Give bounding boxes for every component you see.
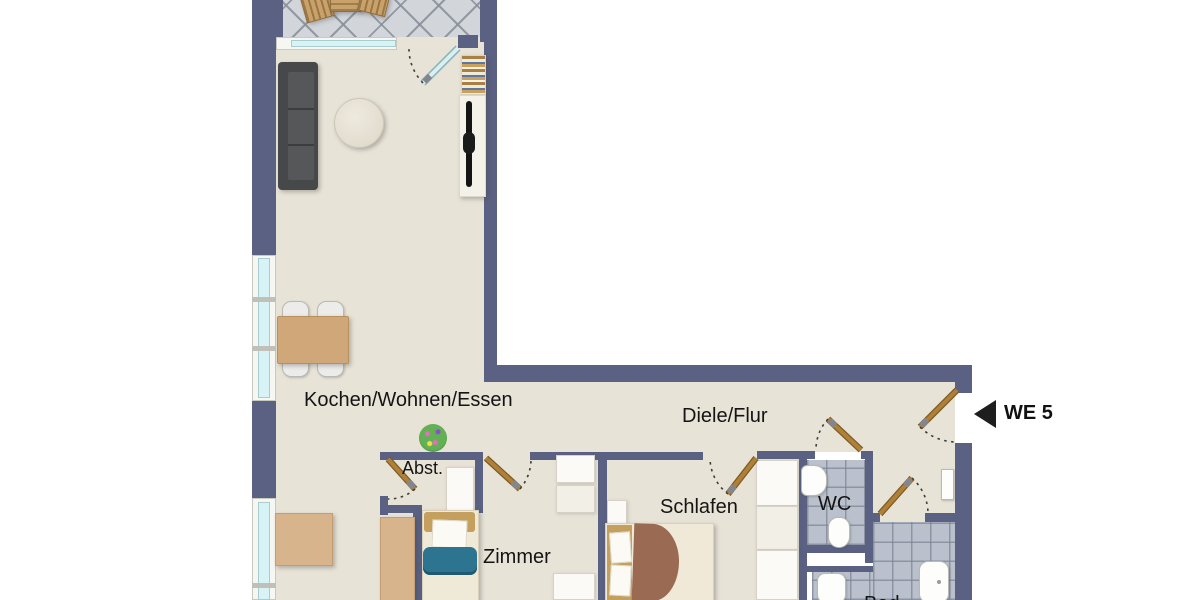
bath-top-wall-left (868, 513, 880, 522)
floor-plan: Kochen/Wohnen/Essen Diele/Flur Abst. Sch… (0, 0, 1200, 600)
corridor-closet (941, 469, 954, 500)
label-bath: Bad (864, 593, 900, 600)
window-mullion (252, 346, 276, 351)
window-mullion (252, 583, 276, 588)
duct-bottom-wall (807, 566, 873, 572)
shower-tray (817, 573, 846, 600)
single-bed (422, 510, 479, 600)
room-closet-bottom (553, 573, 595, 600)
kitchen-counter-left (275, 513, 333, 566)
room-closet-top (556, 455, 595, 483)
double-bed (605, 523, 714, 600)
tv-stand (463, 132, 475, 154)
bathtub-drain (937, 580, 941, 584)
left-wall-pier (252, 400, 276, 499)
dining-table (277, 316, 349, 364)
bathtub (919, 561, 949, 600)
balcony-door-jamb (458, 35, 478, 48)
storage-bottom-wall (380, 505, 417, 513)
wardrobe-unit (756, 506, 798, 550)
window-glass-a (258, 258, 270, 398)
label-storage: Abst. (402, 458, 443, 479)
hall-top-wall (484, 365, 972, 382)
single-bed-blanket (423, 547, 477, 575)
label-hall: Diele/Flur (682, 405, 768, 428)
storage-right-wall (475, 452, 483, 513)
label-bedroom: Schlafen (660, 496, 738, 519)
bookshelf (461, 55, 486, 95)
label-wc: WC (818, 493, 851, 516)
unit-arrow-icon (974, 400, 996, 428)
double-bed-blanket (632, 523, 681, 600)
wardrobe-unit (756, 460, 798, 506)
plant (419, 424, 447, 452)
balcony-window-glass (291, 40, 396, 47)
balcony-left-wall (252, 0, 283, 42)
label-living-room: Kochen/Wohnen/Essen (304, 389, 513, 412)
storage-closet (446, 467, 474, 512)
unit-label: WE 5 (1004, 402, 1053, 425)
wc-toilet (828, 517, 850, 548)
kitchen-counter-right (380, 517, 415, 600)
sofa-cushions (288, 72, 314, 180)
window-mullion (252, 297, 276, 302)
wc-sink (801, 465, 827, 496)
wardrobe-unit (756, 550, 798, 600)
duct-niche (807, 553, 865, 566)
label-room: Zimmer (483, 546, 551, 569)
double-bed-pillow (609, 564, 632, 596)
bath-top-wall-right (925, 513, 955, 522)
right-wall (955, 443, 972, 600)
sofa (278, 62, 318, 190)
room-closet-mid (556, 485, 595, 513)
single-bed-pillow (432, 519, 468, 548)
entry-door-jamb (955, 382, 972, 393)
coffee-table (334, 98, 384, 148)
left-wall-upper (252, 37, 276, 256)
double-bed-pillow (609, 531, 632, 563)
